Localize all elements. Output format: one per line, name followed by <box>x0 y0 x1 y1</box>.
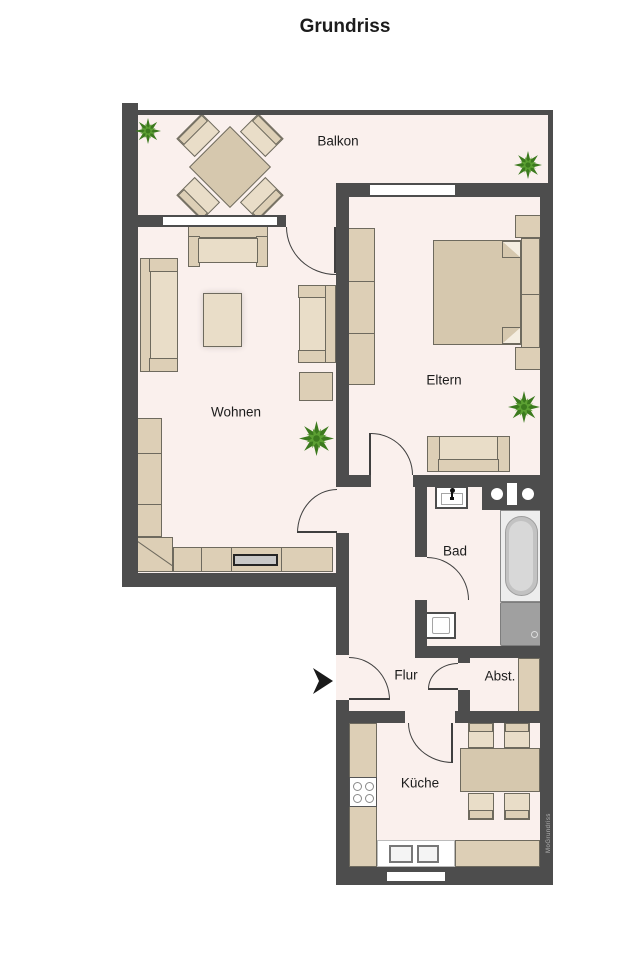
toilet-bowl <box>432 617 450 634</box>
shaft-dot-icon <box>491 488 503 500</box>
door-leaf-bedroom <box>369 433 371 475</box>
dining-chair <box>468 793 494 820</box>
bathtub-basin-inner <box>509 521 533 591</box>
armchair <box>298 285 336 363</box>
chair-back <box>469 723 493 732</box>
faucet-icon <box>450 488 455 493</box>
shaft-dot-icon <box>522 488 534 500</box>
nightstand <box>515 215 541 238</box>
bathtub <box>500 510 543 602</box>
bench-back <box>438 459 499 472</box>
page-title: Grundriss <box>300 16 391 38</box>
sofa-seat <box>150 271 178 359</box>
room-label-balcony: Balkon <box>317 134 358 149</box>
wall-segment <box>336 183 349 482</box>
burner-icon <box>365 782 374 791</box>
room-label-storage: Abst. <box>485 669 516 684</box>
balcony-railing <box>548 115 553 183</box>
shower <box>500 602 543 646</box>
coffee-table <box>203 293 242 347</box>
wall-segment <box>122 115 138 587</box>
wall-segment <box>336 533 349 655</box>
wall-segment <box>415 487 427 557</box>
tv <box>233 554 278 566</box>
wall-segment <box>336 700 349 723</box>
armchair-back <box>325 285 336 363</box>
room-label-bath: Bad <box>443 544 467 559</box>
window-bedroom <box>370 183 455 197</box>
door-leaf-living <box>297 531 337 533</box>
door-leaf-balcony <box>334 227 336 273</box>
plant-icon <box>299 421 334 456</box>
wall-segment <box>540 183 553 885</box>
headboard <box>521 238 540 348</box>
door-leaf-entry <box>349 698 390 700</box>
chair-back <box>469 810 493 819</box>
entrance-arrow-icon <box>313 668 333 694</box>
stove <box>349 777 377 807</box>
window-kitchen <box>387 870 445 883</box>
kitchen-sink-unit <box>377 840 455 867</box>
room-label-living: Wohnen <box>211 405 261 420</box>
sink-bowl <box>417 845 439 863</box>
wall-segment <box>458 658 470 663</box>
wardrobe <box>345 228 375 385</box>
dining-chair <box>504 793 530 820</box>
dining-chair <box>504 722 530 748</box>
pillow <box>502 327 521 344</box>
balcony-railing <box>130 110 553 115</box>
wall-segment <box>138 215 163 227</box>
shelf-divider <box>201 548 202 571</box>
plant-icon <box>508 391 540 423</box>
wall-segment <box>122 573 349 587</box>
room-label-hall: Flur <box>394 668 417 683</box>
door-leaf-storage <box>428 688 458 690</box>
sink-bowl <box>389 845 413 863</box>
shower-drain <box>531 631 538 638</box>
wall-segment <box>415 646 553 658</box>
sofa-armrest <box>149 258 178 272</box>
room-label-kitchen: Küche <box>401 776 439 791</box>
wardrobe-divider <box>346 333 374 334</box>
chair-back <box>505 810 529 819</box>
dining-chair <box>468 722 494 748</box>
headboard-divider <box>522 294 539 295</box>
storage-shelf <box>518 658 540 712</box>
window-living <box>163 215 277 227</box>
armchair-armrest <box>298 350 326 363</box>
faucet-icon <box>450 497 454 500</box>
wall-segment <box>415 600 427 646</box>
shaft-bar-icon <box>507 483 517 505</box>
wall-segment <box>455 711 553 723</box>
dining-table <box>460 748 540 792</box>
sideboard-corner <box>132 537 173 572</box>
wall-segment <box>349 711 405 723</box>
floor-plan: Grundriss <box>0 0 632 960</box>
shelf-divider <box>281 548 282 571</box>
toilet <box>425 612 456 639</box>
chair-back <box>505 723 529 732</box>
armchair-seat <box>299 297 326 351</box>
wall-segment <box>336 475 371 487</box>
sofa-two-seat <box>188 225 268 267</box>
shelf-divider-diagonal <box>134 539 176 568</box>
plant-icon <box>135 118 161 144</box>
sofa-three-seat <box>140 258 178 372</box>
bathroom-sink <box>435 486 468 509</box>
watermark: MoGrundriss <box>546 813 552 853</box>
shelf-divider <box>231 548 232 571</box>
plant-icon <box>514 151 542 179</box>
sofa-armrest <box>149 358 178 372</box>
bathtub-basin <box>505 516 538 596</box>
burner-icon <box>353 782 362 791</box>
burner-icon <box>353 794 362 803</box>
pillow <box>502 241 521 258</box>
wall-segment <box>455 183 553 197</box>
kitchen-counter-bottom <box>455 840 540 867</box>
wardrobe-divider <box>346 281 374 282</box>
burner-icon <box>365 794 374 803</box>
installation-shaft <box>482 478 545 510</box>
wall-segment <box>336 723 349 885</box>
nightstand <box>515 347 541 370</box>
bench-seat <box>439 436 498 460</box>
bedroom-bench <box>427 434 510 472</box>
room-label-parents: Eltern <box>426 373 461 388</box>
door-leaf-kitchen <box>451 723 453 763</box>
wall-segment <box>277 215 286 227</box>
sofa-seat <box>198 238 258 263</box>
ottoman <box>299 372 333 401</box>
